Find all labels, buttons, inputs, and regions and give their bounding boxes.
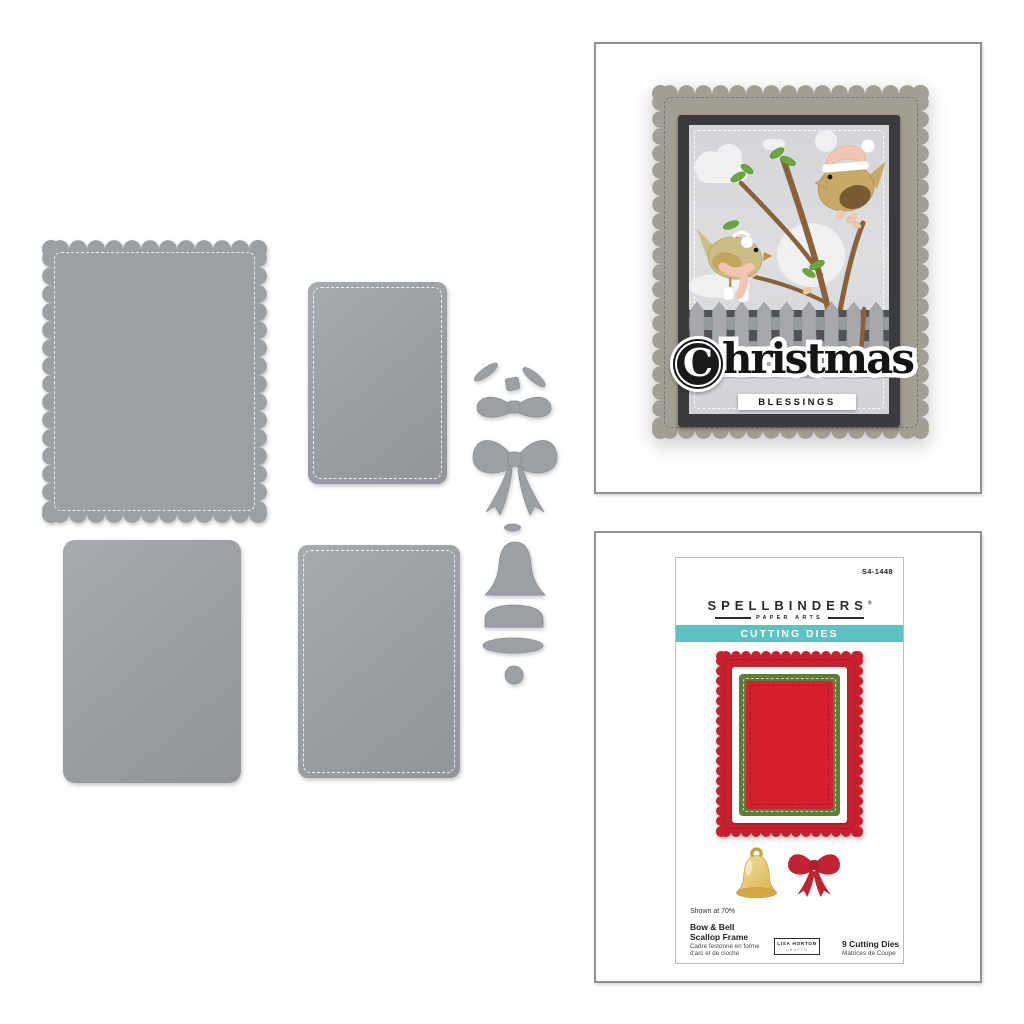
bell-icon [733,846,780,901]
product-sku: S4-1448 [862,567,893,576]
category-band: CUTTING DIES [676,625,903,642]
designer-logo: LISA HORTON CRAFTS [774,938,820,955]
divider-line [715,617,751,618]
product-title-fr-line1: Cadre festonné en forme [690,943,760,950]
bell-hanger-die [505,524,521,531]
product-image: C hristmas hristmas BLESSINGS S4-1448 SP… [0,0,1024,1024]
stitch-detail [54,252,255,511]
product-title-line2: Scallop Frame [690,932,748,942]
die-count-fr: Matrices de Coupe [842,950,896,957]
sample-scallop-frame [716,651,863,837]
bow-and-bell-dies [458,352,570,688]
small-bow-die [477,397,551,417]
bell-clapper-die [505,666,523,684]
brand-subtitle: PAPER ARTS [676,615,903,621]
bow-knot-die [505,377,520,391]
stitch-detail [313,287,442,479]
product-title-line1: Bow & Bell [690,922,734,932]
packaging-card: S4-1448 SPELLBINDERS® PAPER ARTS CUTTING… [675,557,904,964]
scale-note: Shown at 70% [690,908,735,915]
stitch-detail [750,685,829,805]
large-bow-die [473,440,557,515]
bell-body-die [485,542,545,595]
packaging-panel: S4-1448 SPELLBINDERS® PAPER ARTS CUTTING… [594,531,982,983]
stitch-detail [303,550,455,773]
stitched-rectangle-die-large [308,282,447,484]
stitched-rectangle-die-small [298,545,460,778]
registered-mark: ® [868,601,872,607]
sentiment: C hristmas hristmas BLESSINGS [666,328,926,418]
divider-line [828,617,864,618]
product-title-fr-line2: d'arc et de cloche [690,950,739,957]
sentiment-initial-badge: C [670,336,726,392]
bird-with-hat-icon [815,140,886,223]
sentiment-initial: C [673,339,723,389]
scalloped-frame-die [42,240,267,523]
sentiment-sub: BLESSINGS [738,394,856,410]
brand-logo: SPELLBINDERS® [676,598,903,613]
card-example-panel: C hristmas hristmas BLESSINGS [594,42,982,494]
bell-rim-die [485,605,543,627]
die-count: 9 Cutting Dies [842,939,899,949]
bow-icon [786,845,842,899]
sample-red-panel [746,681,833,809]
card-sample: C hristmas hristmas BLESSINGS [652,85,929,439]
bell-lip-die [483,638,543,653]
rectangle-die [63,540,241,783]
